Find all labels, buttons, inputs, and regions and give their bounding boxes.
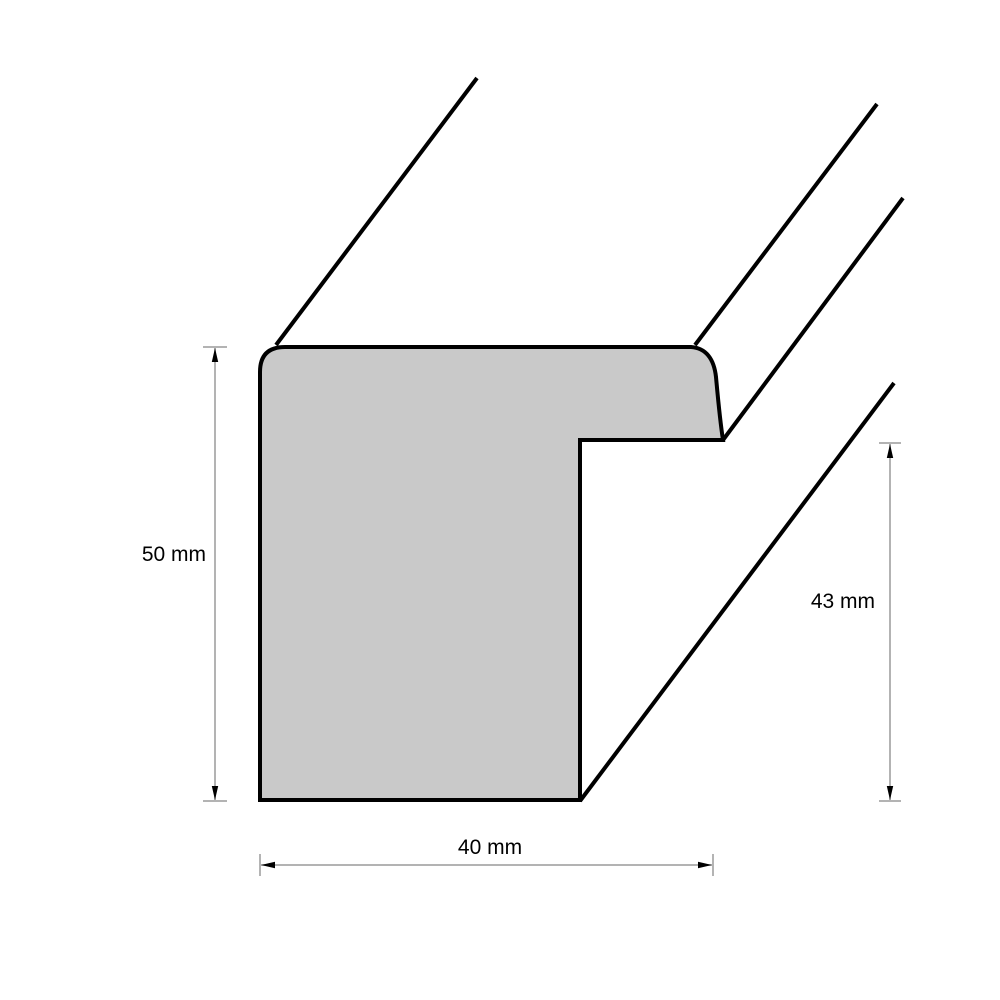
- dimension-height-label: 50 mm: [142, 543, 206, 566]
- perspective-edge-inner-top-icon: [695, 104, 877, 345]
- arrow-down-icon: [887, 786, 893, 800]
- dimension-rabbet-height: 43 mm: [811, 443, 901, 801]
- arrow-up-icon: [212, 348, 218, 362]
- arrow-down-icon: [212, 786, 218, 800]
- dimension-rabbet-label: 43 mm: [811, 590, 875, 613]
- arrow-left-icon: [261, 862, 275, 868]
- dimension-width: 40 mm: [260, 836, 713, 876]
- dimension-height: 50 mm: [142, 347, 227, 801]
- arrow-right-icon: [698, 862, 712, 868]
- diagram-canvas: 50 mm 43 mm 40 mm: [0, 0, 1000, 1000]
- moulding-profile-diagram: 50 mm 43 mm 40 mm: [0, 0, 1000, 1000]
- dimension-width-label: 40 mm: [458, 836, 522, 859]
- perspective-edge-outer-top-icon: [276, 78, 477, 345]
- arrow-up-icon: [887, 444, 893, 458]
- moulding-profile-shape: [260, 347, 723, 800]
